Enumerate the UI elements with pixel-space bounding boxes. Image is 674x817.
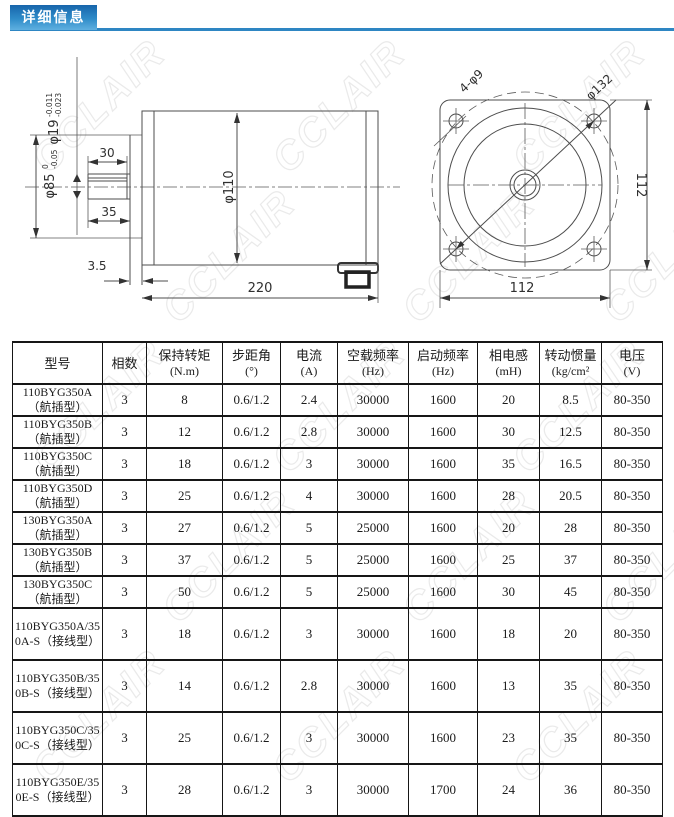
value-cell: 25 bbox=[147, 712, 223, 764]
value-cell: 0.6/1.2 bbox=[223, 544, 281, 576]
value-cell: 0.6/1.2 bbox=[223, 764, 281, 816]
value-cell: 50 bbox=[147, 576, 223, 608]
column-header: 启动频率(Hz) bbox=[409, 342, 478, 384]
model-cell: 110BYG350D（航插型） bbox=[13, 480, 103, 512]
value-cell: 0.6/1.2 bbox=[223, 576, 281, 608]
spec-table: 型号相数保持转矩(N.m)步距角(°)电流(A)空载频率(Hz)启动频率(Hz)… bbox=[12, 341, 663, 817]
value-cell: 0.6/1.2 bbox=[223, 712, 281, 764]
value-cell: 3 bbox=[103, 384, 147, 416]
model-cell: 130BYG350B（航插型） bbox=[13, 544, 103, 576]
value-cell: 80-350 bbox=[602, 608, 663, 660]
value-cell: 20 bbox=[540, 608, 602, 660]
dim-flange-height-label: 112 bbox=[633, 173, 648, 198]
value-cell: 45 bbox=[540, 576, 602, 608]
value-cell: 30000 bbox=[338, 712, 409, 764]
technical-drawing: φ110 220 3.5 30 35 φ19 -0.011 -0.023 φ85 bbox=[0, 36, 674, 336]
details-section-badge: 详细信息 bbox=[10, 5, 97, 30]
dim-shaft-length-label: 35 bbox=[101, 205, 116, 219]
value-cell: 80-350 bbox=[602, 448, 663, 480]
value-cell: 3 bbox=[281, 764, 338, 816]
value-cell: 3 bbox=[103, 544, 147, 576]
value-cell: 28 bbox=[478, 480, 540, 512]
value-cell: 2.8 bbox=[281, 416, 338, 448]
column-header: 保持转矩(N.m) bbox=[147, 342, 223, 384]
value-cell: 2.4 bbox=[281, 384, 338, 416]
value-cell: 5 bbox=[281, 512, 338, 544]
column-header: 相数 bbox=[103, 342, 147, 384]
value-cell: 30000 bbox=[338, 608, 409, 660]
dim-pilot-tol-lower: -0.05 bbox=[50, 149, 59, 169]
value-cell: 2.8 bbox=[281, 660, 338, 712]
value-cell: 20.5 bbox=[540, 480, 602, 512]
value-cell: 23 bbox=[478, 712, 540, 764]
value-cell: 80-350 bbox=[602, 512, 663, 544]
value-cell: 1600 bbox=[409, 544, 478, 576]
value-cell: 35 bbox=[540, 660, 602, 712]
value-cell: 12.5 bbox=[540, 416, 602, 448]
dim-pilot-tol-upper: 0 bbox=[41, 164, 50, 169]
value-cell: 18 bbox=[147, 448, 223, 480]
value-cell: 80-350 bbox=[602, 660, 663, 712]
dim-shaft-diameter-tol-upper: -0.011 bbox=[45, 93, 54, 117]
table-row: 110BYG350B/350B-S（接线型）3140.6/1.22.830000… bbox=[13, 660, 663, 712]
value-cell: 37 bbox=[540, 544, 602, 576]
value-cell: 0.6/1.2 bbox=[223, 512, 281, 544]
value-cell: 80-350 bbox=[602, 544, 663, 576]
model-cell: 110BYG350B/350B-S（接线型） bbox=[13, 660, 103, 712]
value-cell: 24 bbox=[478, 764, 540, 816]
dim-shaft-diameter-tol-lower: -0.023 bbox=[54, 93, 63, 117]
value-cell: 5 bbox=[281, 544, 338, 576]
dim-key-length-label: 30 bbox=[99, 146, 114, 160]
value-cell: 0.6/1.2 bbox=[223, 480, 281, 512]
dim-bolt-circle-label: φ132 bbox=[583, 71, 615, 102]
table-row: 110BYG350A/350A-S（接线型）3180.6/1.233000016… bbox=[13, 608, 663, 660]
value-cell: 3 bbox=[103, 480, 147, 512]
value-cell: 30000 bbox=[338, 660, 409, 712]
value-cell: 25000 bbox=[338, 544, 409, 576]
table-row: 110BYG350C/350C-S（接线型）3250.6/1.233000016… bbox=[13, 712, 663, 764]
value-cell: 1600 bbox=[409, 384, 478, 416]
value-cell: 18 bbox=[147, 608, 223, 660]
value-cell: 12 bbox=[147, 416, 223, 448]
value-cell: 0.6/1.2 bbox=[223, 448, 281, 480]
value-cell: 27 bbox=[147, 512, 223, 544]
table-row: 110BYG350C（航插型）3180.6/1.233000016003516.… bbox=[13, 448, 663, 480]
value-cell: 30000 bbox=[338, 480, 409, 512]
header-row: 型号相数保持转矩(N.m)步距角(°)电流(A)空载频率(Hz)启动频率(Hz)… bbox=[13, 342, 663, 384]
value-cell: 20 bbox=[478, 384, 540, 416]
value-cell: 1600 bbox=[409, 448, 478, 480]
model-cell: 110BYG350E/350E-S（接线型） bbox=[13, 764, 103, 816]
model-cell: 110BYG350C（航插型） bbox=[13, 448, 103, 480]
value-cell: 80-350 bbox=[602, 764, 663, 816]
table-row: 130BYG350B（航插型）3370.6/1.2525000160025378… bbox=[13, 544, 663, 576]
value-cell: 80-350 bbox=[602, 416, 663, 448]
dim-body-length-label: 220 bbox=[248, 281, 273, 296]
dim-body-diameter-label: φ110 bbox=[222, 170, 237, 203]
column-header: 电流(A) bbox=[281, 342, 338, 384]
value-cell: 3 bbox=[103, 448, 147, 480]
value-cell: 5 bbox=[281, 576, 338, 608]
accent-divider-line bbox=[10, 28, 674, 31]
value-cell: 3 bbox=[103, 512, 147, 544]
dim-pilot-diameter-label: φ85 bbox=[43, 173, 58, 198]
value-cell: 20 bbox=[478, 512, 540, 544]
table-row: 110BYG350D（航插型）3250.6/1.243000016002820.… bbox=[13, 480, 663, 512]
table-row: 110BYG350B（航插型）3120.6/1.22.8300001600301… bbox=[13, 416, 663, 448]
value-cell: 80-350 bbox=[602, 480, 663, 512]
value-cell: 3 bbox=[281, 448, 338, 480]
dim-flange-width-label: 112 bbox=[510, 281, 535, 296]
value-cell: 25000 bbox=[338, 512, 409, 544]
value-cell: 35 bbox=[478, 448, 540, 480]
value-cell: 80-350 bbox=[602, 576, 663, 608]
value-cell: 8.5 bbox=[540, 384, 602, 416]
value-cell: 0.6/1.2 bbox=[223, 384, 281, 416]
value-cell: 0.6/1.2 bbox=[223, 416, 281, 448]
model-cell: 110BYG350A（航插型） bbox=[13, 384, 103, 416]
table-row: 130BYG350C（航插型）3500.6/1.2525000160030458… bbox=[13, 576, 663, 608]
dim-pilot-thickness-label: 3.5 bbox=[87, 259, 106, 273]
value-cell: 3 bbox=[103, 660, 147, 712]
model-cell: 130BYG350C（航插型） bbox=[13, 576, 103, 608]
column-header: 型号 bbox=[13, 342, 103, 384]
value-cell: 37 bbox=[147, 544, 223, 576]
column-header: 步距角(°) bbox=[223, 342, 281, 384]
value-cell: 1600 bbox=[409, 576, 478, 608]
value-cell: 1600 bbox=[409, 512, 478, 544]
value-cell: 3 bbox=[103, 764, 147, 816]
value-cell: 8 bbox=[147, 384, 223, 416]
value-cell: 35 bbox=[540, 712, 602, 764]
column-header: 电压(V) bbox=[602, 342, 663, 384]
value-cell: 1600 bbox=[409, 660, 478, 712]
column-header: 相电感(mH) bbox=[478, 342, 540, 384]
value-cell: 13 bbox=[478, 660, 540, 712]
dim-shaft-diameter-label: φ19 bbox=[47, 119, 62, 144]
value-cell: 25 bbox=[147, 480, 223, 512]
value-cell: 1600 bbox=[409, 608, 478, 660]
value-cell: 30000 bbox=[338, 448, 409, 480]
model-cell: 130BYG350A（航插型） bbox=[13, 512, 103, 544]
value-cell: 1600 bbox=[409, 480, 478, 512]
model-cell: 110BYG350B（航插型） bbox=[13, 416, 103, 448]
model-cell: 110BYG350A/350A-S（接线型） bbox=[13, 608, 103, 660]
value-cell: 4 bbox=[281, 480, 338, 512]
value-cell: 30000 bbox=[338, 764, 409, 816]
value-cell: 16.5 bbox=[540, 448, 602, 480]
value-cell: 36 bbox=[540, 764, 602, 816]
mounting-hole bbox=[443, 108, 469, 134]
value-cell: 1600 bbox=[409, 712, 478, 764]
value-cell: 30 bbox=[478, 416, 540, 448]
value-cell: 28 bbox=[147, 764, 223, 816]
table-row: 110BYG350E/350E-S（接线型）3280.6/1.233000017… bbox=[13, 764, 663, 816]
value-cell: 30 bbox=[478, 576, 540, 608]
table-row: 110BYG350A（航插型）380.6/1.22.4300001600208.… bbox=[13, 384, 663, 416]
column-header: 转动惯量(kg/cm² bbox=[540, 342, 602, 384]
value-cell: 0.6/1.2 bbox=[223, 660, 281, 712]
value-cell: 3 bbox=[103, 608, 147, 660]
value-cell: 80-350 bbox=[602, 712, 663, 764]
model-cell: 110BYG350C/350C-S（接线型） bbox=[13, 712, 103, 764]
value-cell: 3 bbox=[103, 416, 147, 448]
value-cell: 1700 bbox=[409, 764, 478, 816]
value-cell: 1600 bbox=[409, 416, 478, 448]
value-cell: 80-350 bbox=[602, 384, 663, 416]
value-cell: 0.6/1.2 bbox=[223, 608, 281, 660]
value-cell: 3 bbox=[103, 576, 147, 608]
table-row: 130BYG350A（航插型）3270.6/1.2525000160020288… bbox=[13, 512, 663, 544]
value-cell: 28 bbox=[540, 512, 602, 544]
dim-mounting-holes-label: 4-φ9 bbox=[456, 67, 486, 96]
value-cell: 30000 bbox=[338, 384, 409, 416]
value-cell: 25 bbox=[478, 544, 540, 576]
value-cell: 30000 bbox=[338, 416, 409, 448]
motor-front-view: φ132 4-φ9 112 112 bbox=[432, 67, 652, 308]
column-header: 空载频率(Hz) bbox=[338, 342, 409, 384]
value-cell: 14 bbox=[147, 660, 223, 712]
value-cell: 25000 bbox=[338, 576, 409, 608]
value-cell: 3 bbox=[103, 712, 147, 764]
value-cell: 18 bbox=[478, 608, 540, 660]
value-cell: 3 bbox=[281, 712, 338, 764]
value-cell: 3 bbox=[281, 608, 338, 660]
mounting-hole bbox=[581, 236, 607, 262]
motor-side-view: φ110 220 3.5 30 35 φ19 -0.011 -0.023 φ85 bbox=[25, 57, 400, 303]
